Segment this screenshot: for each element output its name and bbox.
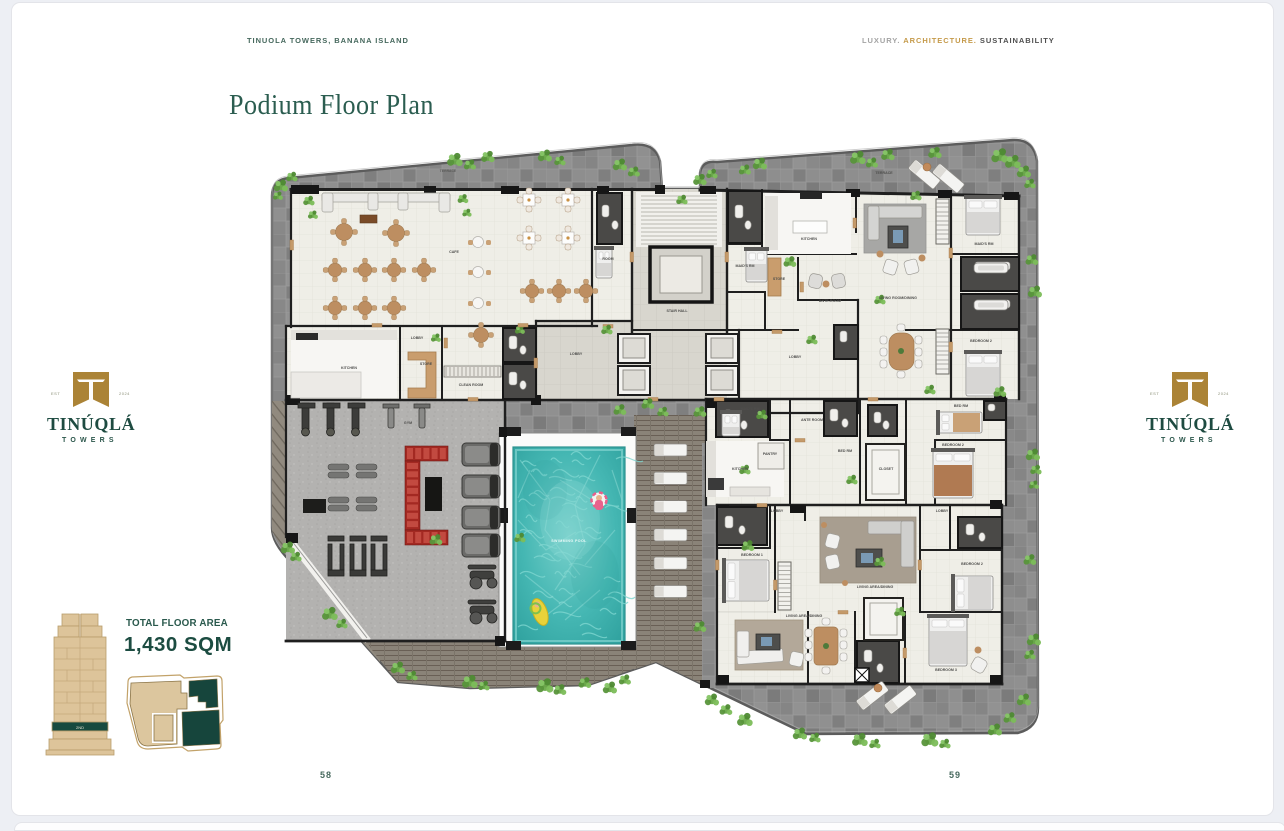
svg-text:STORE: STORE [773,277,786,281]
svg-text:BEDROOM 3: BEDROOM 3 [935,668,957,672]
svg-text:CLEAN ROOM: CLEAN ROOM [459,383,484,387]
svg-text:BEDROOM 1: BEDROOM 1 [741,553,763,557]
svg-text:ROOM: ROOM [602,257,613,261]
svg-text:KITCHEN: KITCHEN [801,237,817,241]
svg-text:ANTE-ROOM: ANTE-ROOM [819,299,841,303]
svg-text:CAFE: CAFE [449,250,459,254]
svg-text:MAID'S RM: MAID'S RM [974,242,993,246]
svg-text:BEDROOM 2: BEDROOM 2 [970,339,992,343]
svg-text:LOBBY: LOBBY [936,509,949,513]
svg-text:TERRACE: TERRACE [440,169,457,173]
svg-text:TERRACE: TERRACE [875,171,893,175]
svg-text:BEDROOM 2: BEDROOM 2 [961,562,983,566]
svg-text:ANTE ROOM: ANTE ROOM [801,418,823,422]
svg-text:LOBBY: LOBBY [411,336,424,340]
svg-text:GYM: GYM [404,421,412,425]
svg-text:LOBBY: LOBBY [570,352,583,356]
svg-text:PANTRY: PANTRY [763,452,778,456]
svg-text:MAID'S RM: MAID'S RM [740,407,759,411]
svg-text:LIVING AREA/DINING: LIVING AREA/DINING [857,585,894,589]
svg-text:SWIMMING POOL: SWIMMING POOL [551,539,587,543]
svg-text:BED RM: BED RM [838,449,852,453]
svg-text:MAID'S RM: MAID'S RM [735,264,754,268]
svg-text:LIVING ROOM/DINING: LIVING ROOM/DINING [879,296,917,300]
svg-text:CLOSET: CLOSET [879,467,894,471]
svg-text:STAIR HALL: STAIR HALL [666,309,688,313]
svg-text:STORE: STORE [420,362,433,366]
svg-text:KITCHEN: KITCHEN [341,366,357,370]
svg-text:KITCHEN: KITCHEN [732,467,748,471]
svg-text:LOBBY: LOBBY [789,355,802,359]
svg-text:LIVING AREA/DINING: LIVING AREA/DINING [786,614,823,618]
svg-text:LOBBY: LOBBY [771,509,784,513]
svg-text:BED RM: BED RM [954,404,968,408]
svg-text:BEDROOM 2: BEDROOM 2 [942,443,964,447]
